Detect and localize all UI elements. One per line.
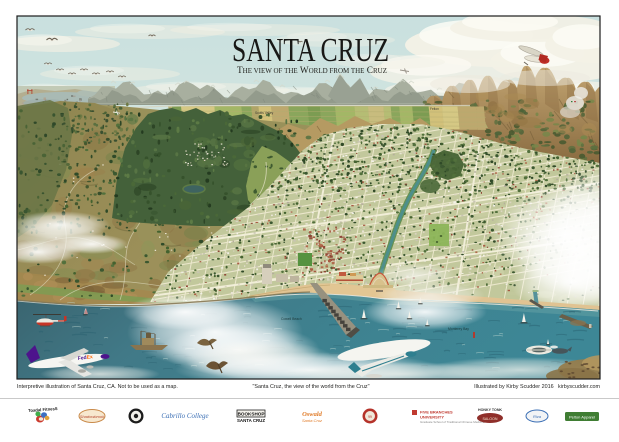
svg-text:Interpretive illustration of S: Interpretive illustration of Santa Cruz,… bbox=[17, 384, 178, 390]
svg-text:Riva: Riva bbox=[533, 414, 542, 419]
svg-text:UNIVERSITY: UNIVERSITY bbox=[420, 415, 444, 420]
svg-text:Toadal FitnesS: Toadal FitnesS bbox=[28, 406, 58, 413]
svg-text:Felton: Felton bbox=[430, 107, 439, 111]
svg-text:HONKY TONK: HONKY TONK bbox=[478, 408, 502, 412]
svg-text:Santa Cruz: Santa Cruz bbox=[302, 418, 322, 423]
svg-text:Shadowbrook: Shadowbrook bbox=[80, 414, 105, 419]
svg-text:Scotts Valley: Scotts Valley bbox=[255, 111, 274, 115]
svg-text:SANTA CRUZ: SANTA CRUZ bbox=[237, 418, 265, 423]
svg-text:Oswald: Oswald bbox=[302, 411, 323, 418]
svg-text:Pelton Apparel: Pelton Apparel bbox=[569, 415, 595, 420]
svg-text:Cabrillo College: Cabrillo College bbox=[161, 412, 208, 420]
svg-text:"Santa Cruz, the view of the w: "Santa Cruz, the view of the world from … bbox=[252, 384, 369, 390]
svg-text:Cowell Beach: Cowell Beach bbox=[281, 317, 302, 321]
svg-text:Monterey Bay: Monterey Bay bbox=[448, 327, 469, 331]
svg-text:SALOON: SALOON bbox=[483, 417, 498, 421]
svg-text:Illustrated by Kirby Scudder 2: Illustrated by Kirby Scudder 2016 kirbys… bbox=[474, 384, 600, 390]
svg-text:99: 99 bbox=[368, 415, 372, 419]
svg-text:SANTA CRUZ: SANTA CRUZ bbox=[232, 32, 389, 69]
svg-text:BOOKSHOP: BOOKSHOP bbox=[238, 412, 265, 417]
svg-text:Graduate School of Traditional: Graduate School of Traditional Chinese M… bbox=[420, 420, 486, 424]
